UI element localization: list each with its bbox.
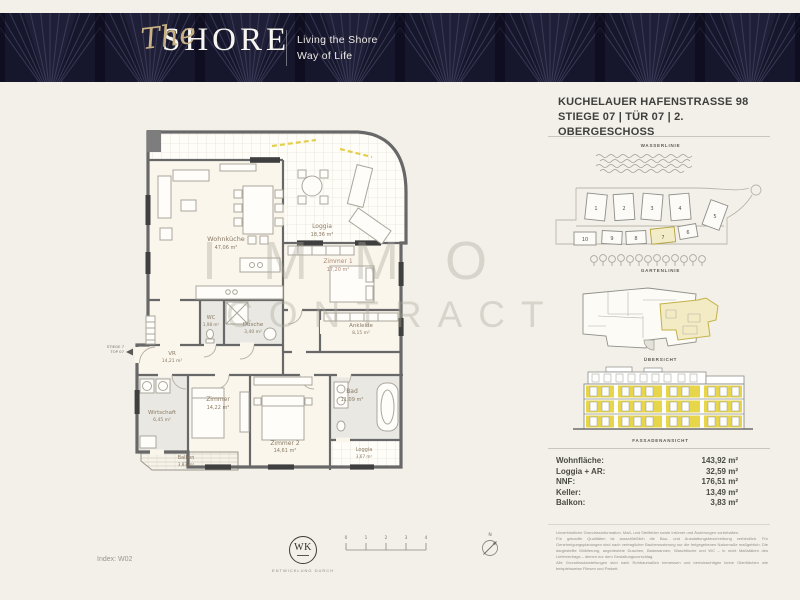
table-row: Loggia + AR: 32,59 m² (556, 467, 738, 478)
scale-tick: 1 (365, 535, 368, 540)
area-value: 3,83 m² (710, 498, 738, 509)
table-row: Wohnfläche: 143,92 m² (556, 456, 738, 467)
scale-bar: 0 1 2 3 4 (340, 533, 435, 557)
overview-stair-curve (644, 340, 654, 350)
uebersicht-label: ÜBERSICHT (548, 357, 773, 362)
header-tagline: Living the Shore Way of Life (297, 32, 378, 65)
disclaimer-line: Für gekaufte Qualitäten ist ausschließli… (556, 536, 768, 560)
room-label: Wirtschaft (148, 410, 177, 416)
room-area: 17,20 m² (327, 267, 350, 273)
area-label: NNF: (556, 477, 575, 488)
disclaimer-text: Unverbindliche Grundrissinformation. Maß… (556, 530, 768, 572)
room-label: Bad (346, 388, 358, 395)
site-plan: 1 2 3 4 5 6 7 8 9 10 (548, 148, 773, 254)
room-label: VR (168, 351, 176, 357)
scale-tick: 2 (385, 535, 388, 540)
building-number: 5 (713, 214, 716, 220)
brochure-page: The SHORE Living the Shore Way of Life (0, 0, 800, 600)
room-area: 1,98 m² (203, 322, 220, 327)
room-label: Zimmer 1 (323, 258, 353, 265)
wk-logo-caption: ENTWICKLUNG DURCH (262, 568, 344, 573)
room-label: Balkon (178, 455, 195, 461)
building-number-highlighted: 7 (661, 235, 664, 241)
disclaimer-line: Alle Grundrissdarstellungen sind nach Ro… (556, 560, 768, 572)
room-area: 14,21 m² (162, 358, 183, 364)
scale-tick: 0 (345, 535, 348, 540)
tree-line-icon (548, 252, 773, 268)
room-label: Loggia (356, 447, 373, 453)
scale-tick-labels: 0 1 2 3 4 (345, 535, 428, 540)
building-number: 4 (678, 206, 681, 212)
address-line1: KUCHELAUER HAFENSTRASSE 98 (558, 95, 773, 110)
area-label: Balkon: (556, 498, 585, 509)
room-label: Zimmer 2 (270, 440, 300, 447)
room-area: 14,22 m² (207, 405, 230, 411)
header-banner: The SHORE Living the Shore Way of Life (0, 13, 800, 82)
address-title: KUCHELAUER HAFENSTRASSE 98 STIEGE 07 | T… (558, 95, 773, 140)
room-area: 3,83 m² (178, 462, 195, 467)
floorplan-drawing: STIEGE 7 TOP 07 Wohnküche 47,06 m² Loggi… (95, 113, 485, 490)
brand-logo-script: The (139, 16, 198, 56)
wk-logo: WK (289, 536, 317, 564)
title-divider (548, 136, 770, 137)
room-area: 47,06 m² (215, 245, 238, 251)
area-label: Wohnfläche: (556, 456, 604, 467)
table-divider-bottom (548, 524, 770, 525)
north-arrow-icon: N (477, 529, 503, 561)
facade-elevation (548, 366, 773, 438)
room-label: Loggia (312, 223, 332, 230)
room-area: 8,15 m² (352, 330, 370, 336)
area-label: Keller: (556, 488, 581, 499)
room-area: 6,45 m² (153, 417, 171, 423)
scale-tick: 3 (405, 535, 408, 540)
building-number: 6 (686, 230, 689, 236)
entrance-label-2: TOP 07 (109, 349, 124, 354)
table-row: Balkon: 3,83 m² (556, 498, 738, 509)
area-value: 143,92 m² (702, 456, 738, 467)
north-label: N (488, 532, 491, 538)
floor-overview (548, 280, 773, 360)
building-number: 8 (634, 236, 637, 242)
artdeco-pattern-icon (0, 13, 800, 82)
building-number: 10 (582, 237, 588, 243)
room-area: 3,40 m² (244, 329, 262, 335)
room-label: Dusche (243, 322, 264, 328)
room-area: 11,09 m² (341, 397, 364, 403)
table-divider-top (548, 448, 770, 449)
tagline-line1: Living the Shore (297, 32, 378, 48)
area-table: Wohnfläche: 143,92 m² Loggia + AR: 32,59… (556, 456, 738, 509)
room-area: 14,61 m² (274, 448, 297, 454)
area-value: 13,49 m² (706, 488, 738, 499)
gartenlinie-label: GARTENLINIE (548, 268, 773, 273)
table-row: NNF: 176,51 m² (556, 477, 738, 488)
flue-block (147, 130, 161, 152)
room-area: 18,36 m² (311, 232, 334, 238)
scale-ticks (346, 543, 426, 550)
building-number: 1 (594, 206, 597, 212)
water-waves-icon (596, 155, 692, 173)
room-label: Wohnküche (207, 235, 245, 243)
area-value: 32,59 m² (706, 467, 738, 478)
building-number: 3 (650, 206, 653, 212)
room-label: Ankleide (349, 323, 373, 329)
wk-logo-subline (297, 555, 309, 556)
tagline-line2: Way of Life (297, 48, 378, 64)
table-row: Keller: 13,49 m² (556, 488, 738, 499)
room-area: 3,67 m² (356, 454, 373, 459)
room-label: WC (207, 315, 216, 321)
building-number: 2 (622, 206, 625, 212)
fassadenansicht-label: FASSADENANSICHT (548, 438, 773, 443)
building-number: 9 (610, 236, 613, 242)
area-label: Loggia + AR: (556, 467, 605, 478)
room-label: Zimmer (206, 396, 230, 403)
scale-tick: 4 (425, 535, 428, 540)
area-value: 176,51 m² (702, 477, 738, 488)
index-label: Index: W02 (97, 556, 132, 563)
site-buildings (574, 193, 728, 245)
entrance-marker: STIEGE 7 TOP 07 (107, 344, 133, 356)
